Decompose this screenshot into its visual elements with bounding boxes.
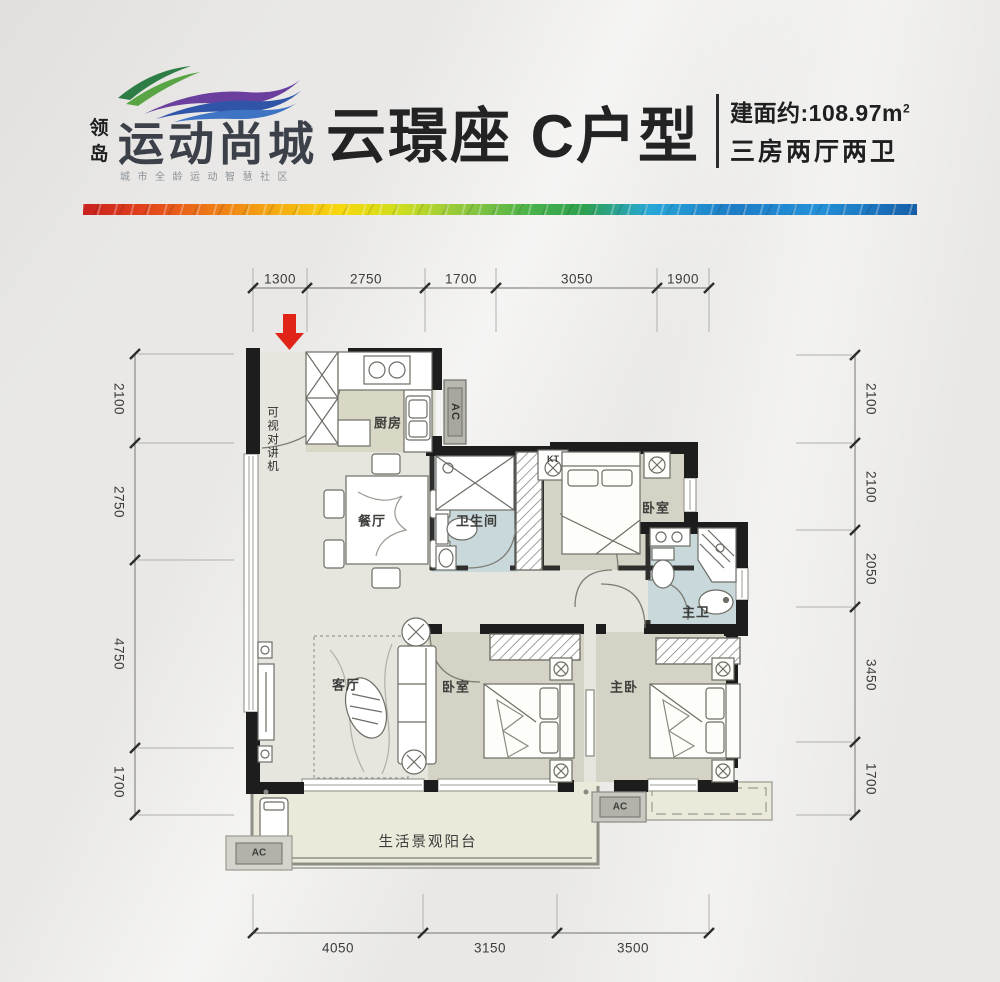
room-label-bedroom-left: 卧室 (442, 677, 470, 696)
room-label-kitchen: 厨房 (374, 413, 402, 432)
dim-left-0: 2100 (112, 383, 127, 415)
dim-bottom-0: 4050 (322, 941, 354, 956)
room-label-master-bath: 主卫 (682, 602, 710, 621)
dim-top-4: 1900 (667, 272, 699, 287)
dim-bottom-1: 3150 (474, 941, 506, 956)
dim-top-0: 1300 (264, 272, 296, 287)
ac-label-bottom-left: AC (252, 848, 266, 859)
dim-right-3: 3450 (864, 659, 879, 691)
ac-label-kitchen: AC (449, 403, 461, 421)
dim-right-0: 2100 (864, 383, 879, 415)
dim-left-1: 2750 (112, 486, 127, 518)
dim-right-1: 2100 (864, 471, 879, 503)
dim-top-1: 2750 (350, 272, 382, 287)
room-label-master-bedroom: 主卧 (610, 677, 638, 696)
ac-label-bottom-center: AC (613, 802, 627, 813)
dim-bottom-2: 3500 (617, 941, 649, 956)
bedroom-pier (584, 634, 596, 780)
dim-left-3: 1700 (112, 766, 127, 798)
floor-plan-svg (0, 0, 1000, 982)
entrance-arrow-icon (275, 314, 304, 350)
room-label-bath: 卫生间 (456, 511, 498, 530)
room-label-living: 客厅 (332, 675, 360, 694)
intercom-label: 可视对讲机 (264, 406, 280, 474)
dim-top-2: 1700 (445, 272, 477, 287)
room-label-balcony: 生活景观阳台 (379, 831, 478, 852)
dim-right-4: 1700 (864, 763, 879, 795)
dim-left-2: 4750 (112, 638, 127, 670)
room-label-dining: 餐厅 (358, 511, 386, 530)
dim-top-3: 3050 (561, 272, 593, 287)
room-label-bedroom-top: 卧室 (642, 498, 670, 517)
dim-right-2: 2050 (864, 553, 879, 585)
kt-label: KT (547, 454, 559, 464)
